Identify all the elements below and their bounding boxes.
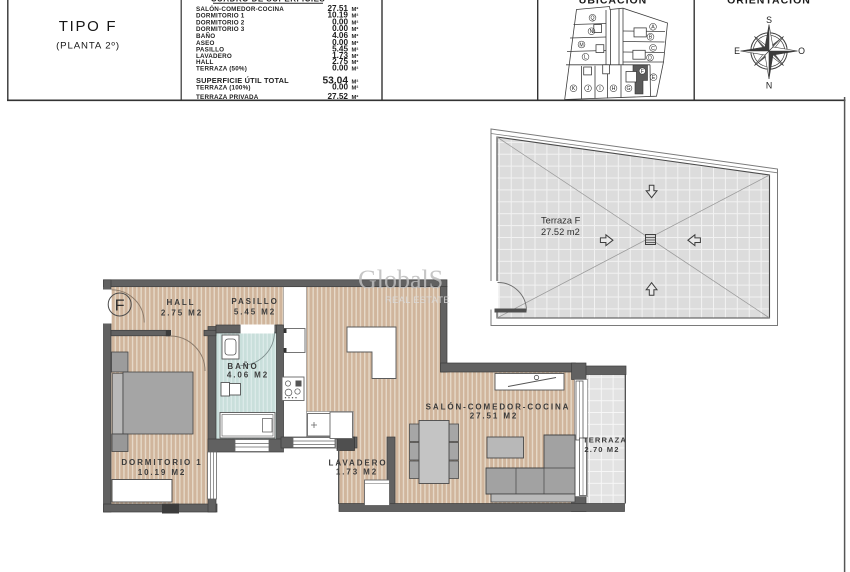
svg-text:M²: M² — [352, 33, 359, 40]
svg-text:HALL: HALL — [167, 298, 196, 307]
svg-text:F: F — [641, 69, 644, 75]
svg-text:10.19 M2: 10.19 M2 — [138, 468, 187, 477]
svg-text:4.06 M2: 4.06 M2 — [227, 371, 269, 380]
svg-text:N: N — [766, 81, 772, 91]
svg-text:(PLANTA 2º): (PLANTA 2º) — [56, 41, 120, 52]
svg-text:PASILLO: PASILLO — [231, 297, 278, 306]
svg-text:M: M — [579, 42, 583, 48]
svg-text:1.73 M2: 1.73 M2 — [336, 468, 378, 477]
svg-text:O: O — [798, 46, 805, 56]
svg-text:E: E — [652, 75, 656, 81]
svg-text:N: N — [590, 29, 594, 35]
svg-text:5.45 M2: 5.45 M2 — [234, 308, 276, 317]
svg-text:A: A — [651, 25, 655, 31]
svg-text:Terraza F: Terraza F — [541, 216, 581, 226]
svg-text:0.00: 0.00 — [332, 83, 348, 92]
svg-text:M²: M² — [352, 66, 359, 73]
svg-text:LAVADERO: LAVADERO — [329, 459, 388, 468]
svg-text:Q: Q — [590, 16, 594, 22]
svg-text:TIPO F: TIPO F — [59, 18, 118, 35]
svg-text:J: J — [587, 86, 590, 92]
svg-text:GlobalS: GlobalS — [358, 265, 443, 294]
svg-text:TERRAZA PRIVADA: TERRAZA PRIVADA — [196, 94, 259, 101]
svg-text:27.52 m2: 27.52 m2 — [541, 227, 580, 237]
svg-text:2.70 M2: 2.70 M2 — [584, 445, 619, 454]
svg-text:B: B — [649, 35, 653, 41]
svg-text:M²: M² — [352, 85, 359, 92]
svg-text:UBICACIÓN: UBICACIÓN — [579, 0, 648, 7]
svg-text:H: H — [612, 86, 616, 92]
svg-text:27.51 M2: 27.51 M2 — [470, 412, 519, 421]
svg-text:DORMITORIO 3: DORMITORIO 3 — [196, 26, 245, 33]
svg-text:2.75 M2: 2.75 M2 — [161, 309, 203, 318]
svg-text:TERRAZA (100%): TERRAZA (100%) — [196, 85, 251, 92]
svg-text:27.52: 27.52 — [328, 92, 349, 101]
svg-text:M²: M² — [352, 26, 359, 33]
svg-text:TERRAZA: TERRAZA — [583, 436, 627, 445]
svg-text:D: D — [648, 56, 652, 62]
svg-text:K: K — [572, 86, 576, 92]
svg-text:ORIENTACIÓN: ORIENTACIÓN — [727, 0, 811, 7]
svg-text:REAL ESTATE: REAL ESTATE — [385, 295, 450, 306]
svg-text:M²: M² — [352, 13, 359, 20]
svg-text:M²: M² — [352, 79, 359, 86]
svg-text:S: S — [766, 15, 772, 25]
svg-text:G: G — [626, 86, 630, 92]
svg-text:0.00: 0.00 — [332, 64, 348, 73]
svg-text:L: L — [584, 55, 587, 61]
svg-text:TERRAZA (50%): TERRAZA (50%) — [196, 66, 247, 73]
svg-text:DORMITORIO 1: DORMITORIO 1 — [121, 458, 202, 467]
svg-text:SALÓN-COMEDOR-COCINA: SALÓN-COMEDOR-COCINA — [426, 403, 571, 412]
svg-text:M²: M² — [352, 59, 359, 66]
svg-text:F: F — [115, 298, 125, 315]
svg-text:M²: M² — [352, 40, 359, 47]
svg-text:I: I — [599, 86, 600, 92]
svg-text:M²: M² — [352, 19, 359, 26]
svg-text:M²: M² — [352, 46, 359, 53]
svg-text:C: C — [651, 46, 655, 52]
svg-text:M²: M² — [352, 94, 359, 101]
svg-text:E: E — [734, 46, 740, 56]
svg-text:M²: M² — [352, 6, 359, 13]
